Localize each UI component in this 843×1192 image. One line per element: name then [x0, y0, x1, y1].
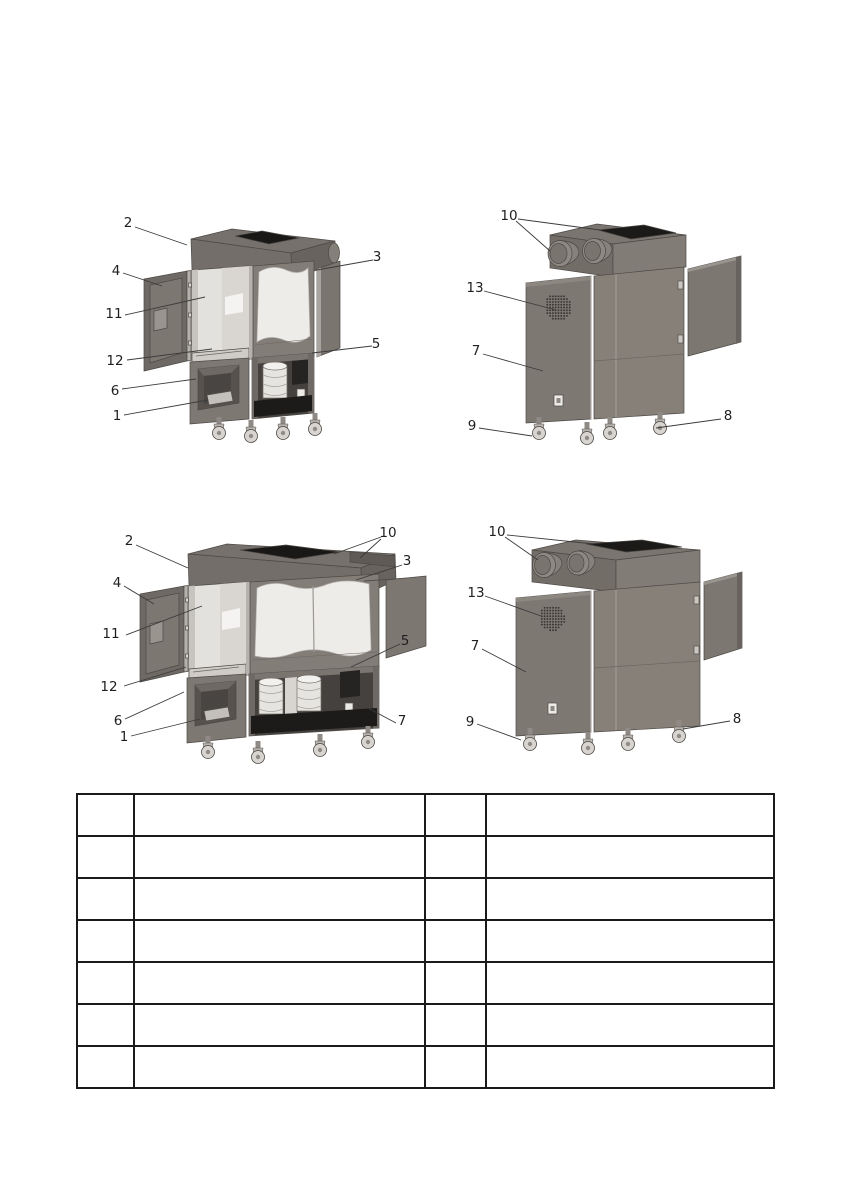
legend-cell — [425, 1004, 486, 1046]
legend-cell — [486, 836, 774, 878]
hinge — [678, 335, 683, 343]
legend-cell — [425, 962, 486, 1004]
caster-wheel — [277, 417, 290, 440]
left-door-open — [144, 271, 192, 372]
callout-label-11: 11 — [102, 626, 119, 642]
figure-rear-wide: 1013798 — [448, 510, 778, 768]
callout-label-10: 10 — [500, 208, 517, 224]
machine-front-narrow-illustration: 2411126135 — [92, 193, 422, 455]
duct-opening — [550, 244, 567, 264]
duct-opening — [535, 556, 551, 575]
legend-cell — [77, 920, 134, 962]
figure-front-wide: 2411126110357 — [88, 510, 428, 776]
leader-line-10 — [505, 537, 538, 560]
outlet-square — [297, 389, 305, 397]
legend-cell — [486, 794, 774, 836]
caster-wheel — [654, 412, 667, 435]
caster-wheel — [604, 417, 617, 440]
lower-cabinet — [190, 353, 314, 424]
legend-table-body — [77, 794, 774, 1088]
legend-cell — [77, 1046, 134, 1088]
legend-row — [77, 878, 774, 920]
legend-row — [77, 1004, 774, 1046]
filter-canister — [259, 682, 283, 714]
callout-label-8: 8 — [733, 711, 742, 727]
legend-cell — [425, 794, 486, 836]
callout-label-12: 12 — [106, 353, 123, 369]
legend-cell — [486, 1046, 774, 1088]
legend-cell — [77, 794, 134, 836]
callout-label-5: 5 — [372, 336, 381, 352]
main-body — [526, 267, 684, 423]
legend-cell — [134, 920, 425, 962]
viewing-window — [257, 267, 310, 342]
caster-wheel — [309, 413, 322, 436]
legend-cell — [486, 1004, 774, 1046]
legend-cell — [134, 1046, 425, 1088]
callout-label-11: 11 — [105, 306, 122, 322]
right-door-open — [688, 256, 741, 356]
callout-label-2: 2 — [125, 533, 134, 549]
duct-opening — [569, 554, 584, 572]
leader-line-2 — [135, 227, 187, 245]
caster-wheel — [252, 741, 265, 764]
callout-label-4: 4 — [113, 575, 122, 591]
legend-cell — [486, 962, 774, 1004]
leader-line-10 — [507, 535, 594, 544]
duct-opening — [585, 242, 601, 261]
filter-canister — [297, 679, 321, 711]
legend-cell — [134, 1004, 425, 1046]
caster-wheel — [245, 420, 258, 443]
callout-label-13: 13 — [467, 585, 484, 601]
legend-cell — [486, 920, 774, 962]
leader-line-8 — [656, 419, 721, 428]
legend-row — [77, 962, 774, 1004]
legend-cell — [134, 962, 425, 1004]
leader-line-9 — [477, 724, 521, 740]
callout-label-9: 9 — [466, 714, 475, 730]
machine-rear-wide-illustration: 1013798 — [448, 510, 778, 768]
callout-label-7: 7 — [398, 713, 407, 729]
legend-cell — [486, 878, 774, 920]
duct-corner — [329, 243, 340, 263]
legend-cell — [425, 836, 486, 878]
callout-label-6: 6 — [111, 383, 120, 399]
callout-label-3: 3 — [373, 249, 382, 265]
legend-cell — [134, 794, 425, 836]
legend-cell — [77, 878, 134, 920]
main-body — [516, 582, 700, 736]
legend-cell — [77, 1004, 134, 1046]
figure-front-narrow: 2411126135 — [92, 193, 422, 455]
leader-line-10 — [518, 219, 600, 230]
leader-line-9 — [479, 428, 532, 436]
callout-label-7: 7 — [471, 638, 480, 654]
legend-cell — [425, 920, 486, 962]
legend-cell — [134, 836, 425, 878]
legend-row — [77, 920, 774, 962]
lower-cabinet — [187, 666, 379, 743]
process-chamber — [189, 574, 426, 681]
legend-table — [76, 793, 775, 1089]
filter-canister — [263, 366, 287, 398]
caster-wheel — [362, 726, 375, 749]
machine-rear-narrow-illustration: 1013798 — [448, 193, 773, 455]
side-panel — [594, 267, 684, 419]
page: 2411126135 — [0, 0, 843, 1192]
hinge — [694, 596, 699, 604]
legend-row — [77, 1046, 774, 1088]
caster-wheel — [582, 732, 595, 755]
callout-label-2: 2 — [124, 215, 133, 231]
callout-label-12: 12 — [100, 679, 117, 695]
legend-row — [77, 794, 774, 836]
callout-label-10: 10 — [488, 524, 505, 540]
caster-wheel — [622, 728, 635, 751]
fan-grill — [546, 295, 570, 319]
callout-label-4: 4 — [112, 263, 121, 279]
legend-cell — [134, 878, 425, 920]
callout-label-5: 5 — [401, 633, 410, 649]
callout-label-6: 6 — [114, 713, 123, 729]
legend-row — [77, 836, 774, 878]
hinge — [678, 281, 683, 289]
callout-label-3: 3 — [403, 553, 412, 569]
legend-cell — [425, 878, 486, 920]
callout-label-7: 7 — [472, 343, 481, 359]
legend-cell — [77, 962, 134, 1004]
process-chamber — [192, 261, 340, 365]
callout-label-9: 9 — [468, 418, 477, 434]
callout-label-1: 1 — [120, 729, 129, 745]
caster-wheel — [581, 422, 594, 445]
machine-front-wide-illustration: 2411126110357 — [88, 510, 428, 776]
leader-line-10 — [516, 221, 550, 251]
caster-wheel — [314, 734, 327, 757]
hinge — [694, 646, 699, 654]
legend-cell — [77, 836, 134, 878]
leader-line-2 — [136, 545, 188, 568]
side-panel — [594, 582, 700, 732]
figure-rear-narrow: 1013798 — [448, 193, 773, 455]
callout-label-10: 10 — [379, 525, 396, 541]
legend-cell — [425, 1046, 486, 1088]
callout-label-13: 13 — [466, 280, 483, 296]
callout-label-1: 1 — [113, 408, 122, 424]
leader-line-6 — [122, 379, 196, 389]
leader-line-6 — [125, 692, 184, 719]
right-door-open — [704, 572, 742, 660]
callout-label-8: 8 — [724, 408, 733, 424]
